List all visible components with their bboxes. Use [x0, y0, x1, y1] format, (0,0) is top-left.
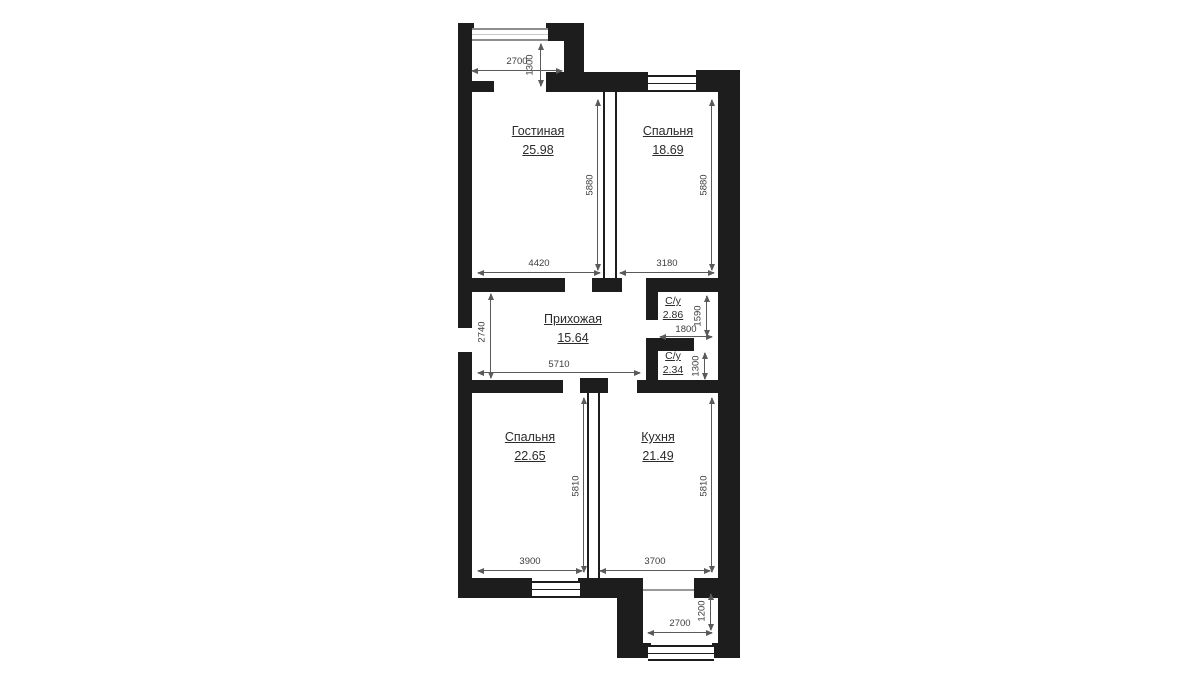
- room-area: 25.98: [512, 141, 564, 160]
- dimension-line: [540, 44, 541, 86]
- room-area: 15.64: [544, 329, 602, 348]
- room-area: 2.86: [663, 308, 683, 322]
- dimension-line: [710, 594, 711, 630]
- dim-kitchen-height: 5810: [699, 475, 710, 496]
- dimension-line: [472, 70, 562, 71]
- wall-segment: [646, 292, 658, 320]
- dim-bedroom2-height: 5810: [571, 475, 582, 496]
- floor-plan: 2700 1300 4420 3180 5880 5880 2740 5710 …: [0, 0, 1193, 673]
- room-area: 21.49: [641, 447, 674, 466]
- room-name: Гостиная: [512, 122, 564, 141]
- room-label-wc2: С/у 2.34: [663, 349, 683, 377]
- dimension-line: [706, 296, 707, 336]
- wall-segment: [580, 378, 608, 393]
- dim-living-width: 4420: [528, 258, 549, 269]
- dim-wc2-height: 1300: [691, 355, 702, 376]
- wall-segment: [646, 278, 718, 292]
- dimension-line: [478, 272, 600, 273]
- dim-top-balcony-depth: 1300: [525, 54, 536, 75]
- room-name: Кухня: [641, 428, 674, 447]
- window-symbol: [472, 28, 548, 41]
- dimension-line: [648, 632, 712, 633]
- wall-segment: [458, 278, 565, 292]
- room-area: 2.34: [663, 363, 683, 377]
- dimension-line: [704, 353, 705, 379]
- dim-bedroom2-width: 3900: [519, 556, 540, 567]
- wall-segment: [546, 72, 648, 92]
- wall-segment: [458, 81, 494, 92]
- dimension-line: [478, 372, 640, 373]
- wall-segment: [637, 380, 718, 393]
- room-label-wc1: С/у 2.86: [663, 294, 683, 322]
- partition-wall: [587, 393, 600, 578]
- wall-segment: [458, 92, 472, 328]
- room-name: Спальня: [643, 122, 693, 141]
- balcony-threshold: [643, 589, 694, 591]
- wall-segment: [617, 643, 651, 658]
- dimension-line: [583, 398, 584, 572]
- dim-bottom-balcony-depth: 1200: [697, 600, 708, 621]
- dim-bedroom1-height: 5880: [699, 174, 710, 195]
- wall-segment: [458, 380, 563, 393]
- room-name: Прихожая: [544, 310, 602, 329]
- window-symbol: [532, 581, 580, 598]
- room-area: 18.69: [643, 141, 693, 160]
- wall-segment: [580, 578, 643, 598]
- dimension-line: [711, 398, 712, 572]
- room-name: С/у: [663, 294, 683, 308]
- room-label-bedroom-top: Спальня 18.69: [643, 122, 693, 160]
- dimension-line: [597, 100, 598, 270]
- dim-bottom-balcony-width: 2700: [669, 618, 690, 629]
- dim-kitchen-width: 3700: [644, 556, 665, 567]
- window-symbol: [648, 75, 696, 92]
- wall-segment: [718, 92, 740, 658]
- dimension-line: [660, 336, 712, 337]
- wall-segment: [696, 70, 740, 92]
- wall-segment: [694, 578, 740, 598]
- room-label-kitchen: Кухня 21.49: [641, 428, 674, 466]
- window-symbol: [648, 645, 714, 661]
- wall-segment: [458, 578, 532, 598]
- dim-wc-width: 1800: [675, 324, 696, 335]
- dimension-line: [711, 100, 712, 270]
- room-label-bedroom-bottom: Спальня 22.65: [505, 428, 555, 466]
- dim-living-height: 5880: [585, 174, 596, 195]
- wall-segment: [712, 643, 740, 658]
- dim-hall-height: 2740: [477, 321, 488, 342]
- partition-wall: [603, 92, 617, 278]
- dimension-line: [478, 570, 582, 571]
- wall-segment: [592, 278, 622, 292]
- room-area: 22.65: [505, 447, 555, 466]
- dimension-line: [490, 294, 491, 378]
- room-label-hall: Прихожая 15.64: [544, 310, 602, 348]
- dim-hall-width: 5710: [548, 359, 569, 370]
- room-name: Спальня: [505, 428, 555, 447]
- wall-segment: [646, 338, 658, 382]
- room-label-living: Гостиная 25.98: [512, 122, 564, 160]
- dimension-line: [600, 570, 710, 571]
- room-name: С/у: [663, 349, 683, 363]
- dim-bedroom1-width: 3180: [656, 258, 677, 269]
- dimension-line: [620, 272, 714, 273]
